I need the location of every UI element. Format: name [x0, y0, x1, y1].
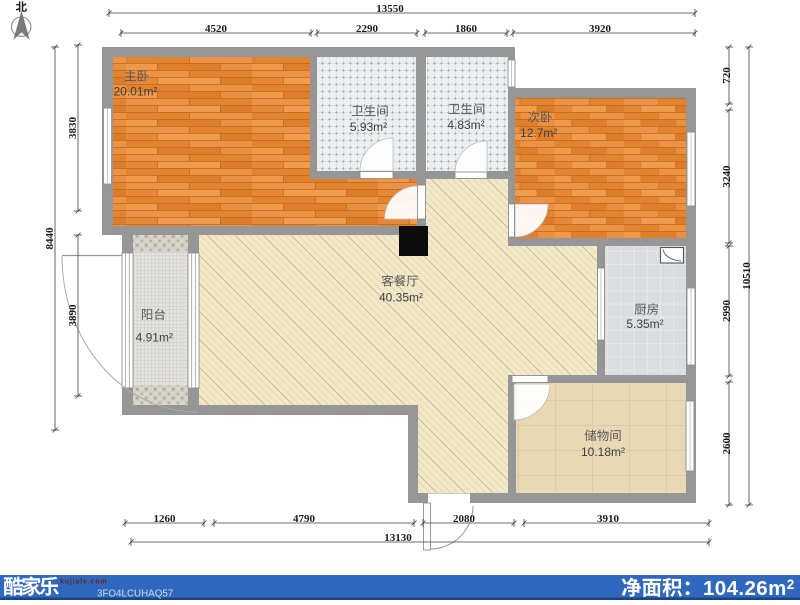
svg-text:2600: 2600: [721, 432, 733, 455]
svg-text:4790: 4790: [293, 513, 316, 525]
svg-text:40.35m²: 40.35m²: [379, 291, 423, 305]
svg-text:1260: 1260: [154, 513, 177, 525]
svg-text:3910: 3910: [597, 513, 620, 525]
svg-text:3240: 3240: [721, 165, 733, 188]
svg-text:kujiale.com: kujiale.com: [60, 579, 107, 586]
svg-text:3920: 3920: [589, 23, 612, 35]
svg-text:4.91m²: 4.91m²: [136, 330, 173, 344]
svg-text:10.18m²: 10.18m²: [581, 445, 625, 459]
svg-text:2290: 2290: [356, 23, 379, 35]
svg-text:13550: 13550: [376, 3, 404, 15]
svg-text:3FO4LCUHAQ57: 3FO4LCUHAQ57: [97, 589, 173, 600]
svg-text:12.7m²: 12.7m²: [520, 126, 557, 140]
svg-text:13130: 13130: [384, 532, 412, 544]
svg-text:1860: 1860: [455, 23, 478, 35]
svg-text:20.01m²: 20.01m²: [113, 85, 157, 99]
svg-text:8440: 8440: [44, 227, 56, 250]
svg-text:10510: 10510: [741, 262, 753, 290]
svg-text:720: 720: [721, 67, 733, 84]
svg-text:2990: 2990: [721, 300, 733, 323]
svg-text:3890: 3890: [67, 304, 79, 327]
svg-text:5.93m²: 5.93m²: [350, 120, 387, 134]
svg-text:5.35m²: 5.35m²: [626, 317, 663, 331]
svg-text:3830: 3830: [67, 117, 79, 140]
svg-text:4.83m²: 4.83m²: [447, 118, 484, 132]
svg-text:4520: 4520: [205, 23, 228, 35]
svg-text:2080: 2080: [453, 513, 476, 525]
svg-text:104.26m2: 104.26m2: [703, 577, 795, 600]
